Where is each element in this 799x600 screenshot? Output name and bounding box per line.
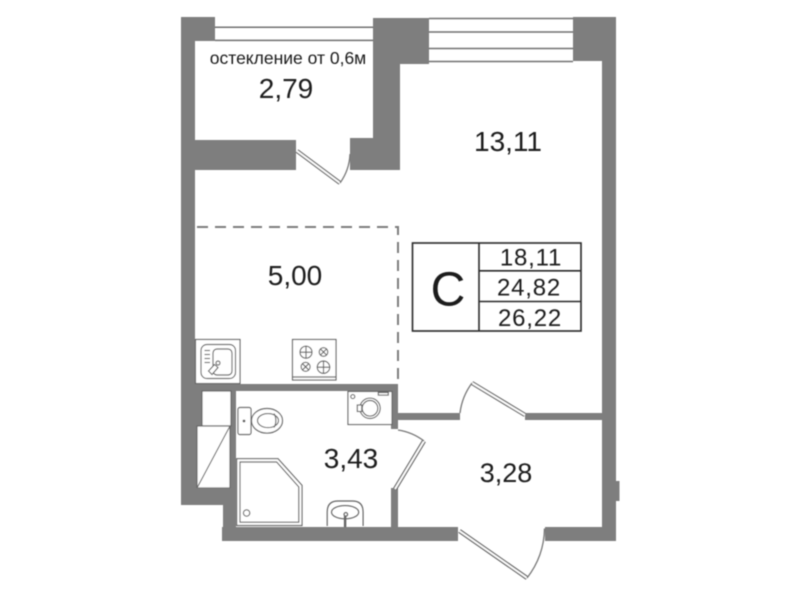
svg-text:3,43: 3,43: [324, 443, 379, 474]
svg-text:5,00: 5,00: [268, 260, 323, 291]
svg-text:С: С: [431, 264, 466, 317]
svg-text:26,22: 26,22: [498, 305, 562, 332]
svg-text:2,79: 2,79: [259, 73, 314, 104]
svg-text:3,28: 3,28: [480, 458, 533, 488]
svg-text:остекление от 0,6м: остекление от 0,6м: [210, 48, 366, 68]
svg-text:13,11: 13,11: [474, 126, 542, 157]
svg-text:18,11: 18,11: [500, 245, 562, 272]
svg-text:24,82: 24,82: [497, 275, 561, 302]
